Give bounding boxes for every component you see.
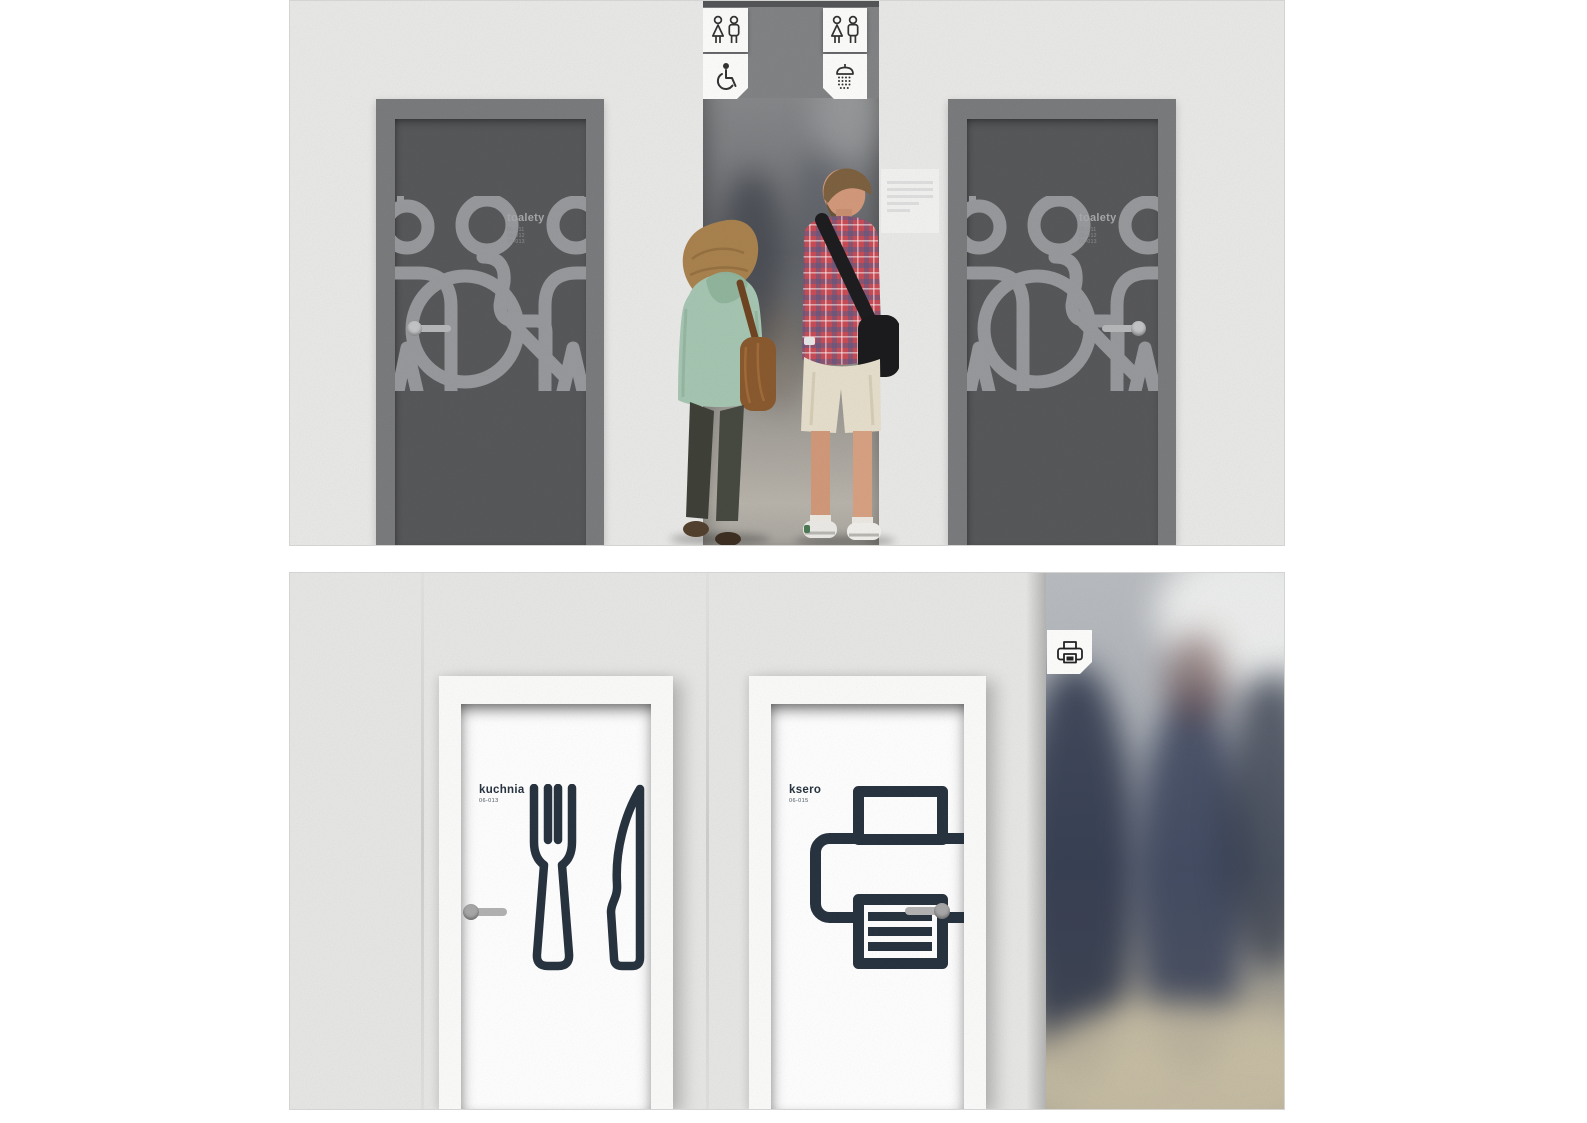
wc-sign-card <box>703 8 748 52</box>
signage-tab-right <box>823 8 867 101</box>
pictogram-band: toalety 06-011 06-012 06-013 <box>967 196 1158 391</box>
door-title: toalety <box>1079 212 1117 224</box>
person-man <box>784 167 899 546</box>
wall-seam <box>706 573 709 1109</box>
door-label: ksero 06-015 <box>789 784 821 804</box>
door-label: toalety 06-011 06-012 06-013 <box>1079 212 1117 245</box>
door-code: 06-013 <box>479 798 525 804</box>
signage-tab-left <box>703 8 748 101</box>
door-title: toalety <box>507 212 545 224</box>
wheelchair-sign-card <box>703 54 748 99</box>
handle-knob <box>1131 321 1146 336</box>
printer-sign-tab <box>1047 630 1092 674</box>
handle-knob <box>407 321 422 336</box>
wall-edge-shadow <box>1026 573 1046 1109</box>
door-title: ksero <box>789 784 821 796</box>
wc-women-men-icon <box>709 15 743 45</box>
blurred-floor <box>1046 1003 1285 1109</box>
toilet-door-leaf: toalety 06-011 06-012 06-013 <box>395 119 586 545</box>
door-label: toalety 06-011 06-012 06-013 <box>507 212 545 245</box>
printer-icon <box>1055 639 1085 666</box>
door-label: kuchnia 06-013 <box>479 784 525 804</box>
toilets-pictogram <box>395 196 586 391</box>
door-code: 06-015 <box>789 798 821 804</box>
door-subline: 06-013 <box>1079 239 1117 245</box>
shower-sign-card <box>823 54 867 99</box>
door-subline: 06-013 <box>507 239 545 245</box>
pictogram-band: toalety 06-011 06-012 06-013 <box>395 196 586 391</box>
handle-knob <box>463 904 479 920</box>
person-woman <box>656 219 786 546</box>
fork-knife-icon <box>529 784 645 972</box>
door-handle <box>407 321 451 336</box>
door-handle <box>463 904 507 920</box>
toilet-door-left: toalety 06-011 06-012 06-013 <box>376 99 604 545</box>
wall-seam <box>421 573 424 1109</box>
printer-icon <box>810 786 964 971</box>
wc-women-men-icon <box>828 15 862 45</box>
bottom-photo-panel: kuchnia 06-013 ksero <box>289 572 1285 1110</box>
copy-room-door: ksero 06-015 <box>749 676 986 1109</box>
kitchen-door: kuchnia 06-013 <box>439 676 673 1109</box>
handle-knob <box>934 903 950 919</box>
door-handle <box>1102 321 1146 336</box>
toilet-door-leaf: toalety 06-011 06-012 06-013 <box>967 119 1158 545</box>
door-title: kuchnia <box>479 784 525 796</box>
beam-shadow-strip <box>703 1 879 7</box>
wheelchair-icon <box>712 62 739 91</box>
wc-sign-card <box>823 8 867 52</box>
toilet-door-right: toalety 06-011 06-012 06-013 <box>948 99 1176 545</box>
door-handle <box>905 903 950 919</box>
top-photo-panel: toalety 06-011 06-012 06-013 <box>289 0 1285 546</box>
blurred-figure <box>1166 633 1226 723</box>
copy-room-door-leaf: ksero 06-015 <box>771 704 964 1109</box>
shower-icon <box>831 63 859 91</box>
toilets-pictogram <box>967 196 1158 391</box>
kitchen-door-leaf: kuchnia 06-013 <box>461 704 651 1109</box>
design-board: toalety 06-011 06-012 06-013 <box>0 0 1587 1123</box>
